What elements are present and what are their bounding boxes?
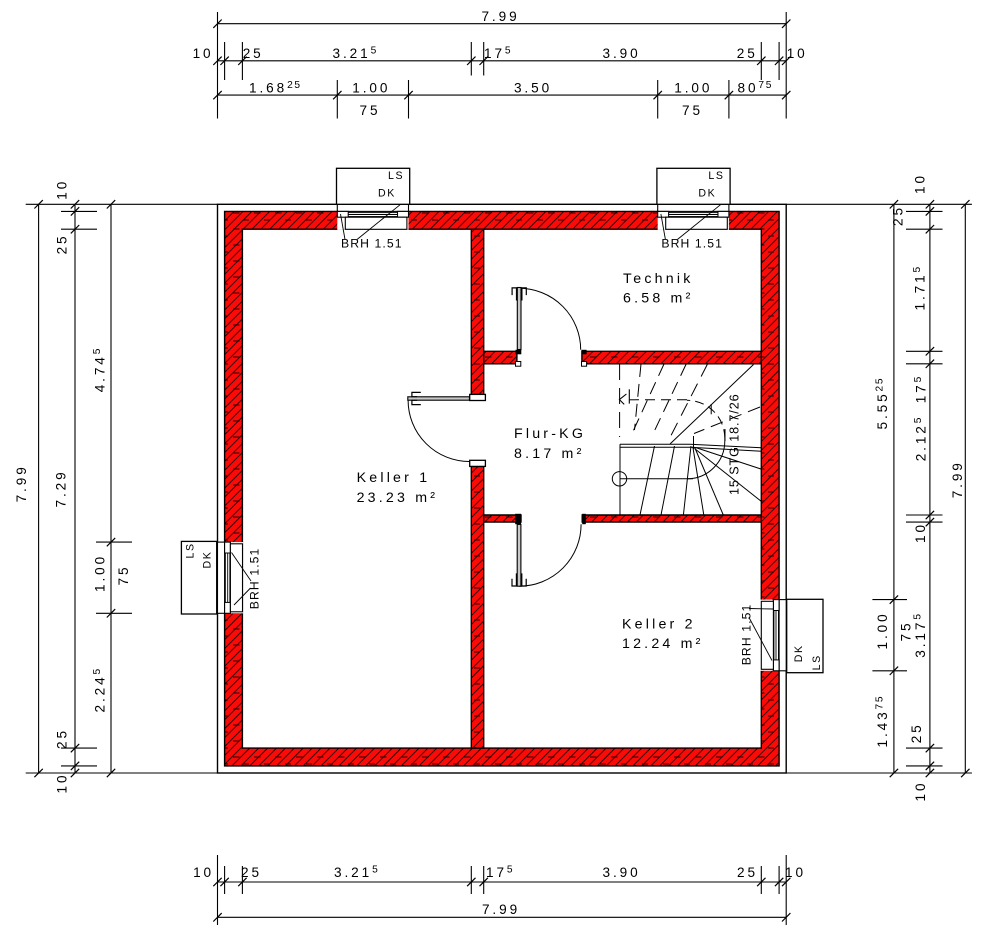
svg-text:25: 25 bbox=[55, 728, 70, 749]
svg-text:BRH 1.51: BRH 1.51 bbox=[740, 604, 754, 666]
svg-text:1.00: 1.00 bbox=[92, 554, 107, 592]
svg-text:10: 10 bbox=[55, 773, 70, 794]
svg-text:6.58 m²: 6.58 m² bbox=[623, 291, 694, 307]
svg-text:1.00: 1.00 bbox=[352, 81, 390, 96]
svg-text:Keller 1: Keller 1 bbox=[357, 470, 431, 486]
svg-text:DK: DK bbox=[202, 551, 214, 569]
svg-text:DK: DK bbox=[793, 644, 805, 662]
svg-text:25: 25 bbox=[241, 865, 262, 880]
svg-text:DK: DK bbox=[698, 188, 716, 200]
svg-text:7.99: 7.99 bbox=[14, 464, 29, 502]
svg-text:75: 75 bbox=[899, 621, 914, 642]
svg-text:1.00: 1.00 bbox=[674, 81, 712, 96]
svg-text:25: 25 bbox=[55, 233, 70, 254]
svg-text:15 STG 18.7/26: 15 STG 18.7/26 bbox=[728, 393, 742, 495]
svg-text:75: 75 bbox=[360, 103, 381, 118]
svg-text:12.24 m²: 12.24 m² bbox=[622, 636, 704, 652]
svg-text:3.90: 3.90 bbox=[603, 46, 641, 61]
svg-text:10: 10 bbox=[787, 46, 808, 61]
svg-text:BRH 1.51: BRH 1.51 bbox=[248, 548, 262, 610]
svg-text:7.99: 7.99 bbox=[481, 9, 519, 24]
svg-text:10: 10 bbox=[55, 179, 70, 200]
svg-text:LS: LS bbox=[388, 170, 404, 182]
svg-text:8.17 m²: 8.17 m² bbox=[514, 446, 585, 462]
svg-text:Technik: Technik bbox=[623, 271, 694, 287]
svg-text:25: 25 bbox=[737, 865, 758, 880]
svg-text:10: 10 bbox=[193, 865, 214, 880]
svg-text:25: 25 bbox=[909, 722, 924, 743]
svg-text:10: 10 bbox=[193, 46, 214, 61]
svg-text:7.99: 7.99 bbox=[950, 460, 965, 498]
svg-text:LS: LS bbox=[185, 542, 197, 558]
svg-text:75: 75 bbox=[116, 565, 131, 586]
svg-text:Keller 2: Keller 2 bbox=[622, 617, 696, 633]
svg-text:23.23 m²: 23.23 m² bbox=[357, 490, 439, 506]
svg-text:7.99: 7.99 bbox=[482, 902, 520, 917]
svg-text:Flur-KG: Flur-KG bbox=[514, 426, 586, 442]
svg-text:BRH 1.51: BRH 1.51 bbox=[341, 237, 403, 251]
svg-text:25: 25 bbox=[890, 205, 905, 226]
svg-text:LS: LS bbox=[708, 170, 724, 182]
svg-text:25: 25 bbox=[243, 46, 264, 61]
svg-text:25: 25 bbox=[737, 46, 758, 61]
svg-text:10: 10 bbox=[785, 865, 806, 880]
svg-text:75: 75 bbox=[682, 103, 703, 118]
svg-text:10: 10 bbox=[913, 522, 928, 543]
svg-text:10: 10 bbox=[913, 173, 928, 194]
svg-text:3.50: 3.50 bbox=[514, 81, 552, 96]
svg-text:3.90: 3.90 bbox=[603, 865, 641, 880]
svg-text:LS: LS bbox=[811, 654, 823, 670]
svg-text:BRH 1.51: BRH 1.51 bbox=[661, 237, 723, 251]
svg-text:10: 10 bbox=[913, 781, 928, 802]
svg-text:1.00: 1.00 bbox=[875, 611, 890, 649]
svg-text:DK: DK bbox=[378, 188, 396, 200]
svg-text:7.29: 7.29 bbox=[53, 469, 68, 507]
